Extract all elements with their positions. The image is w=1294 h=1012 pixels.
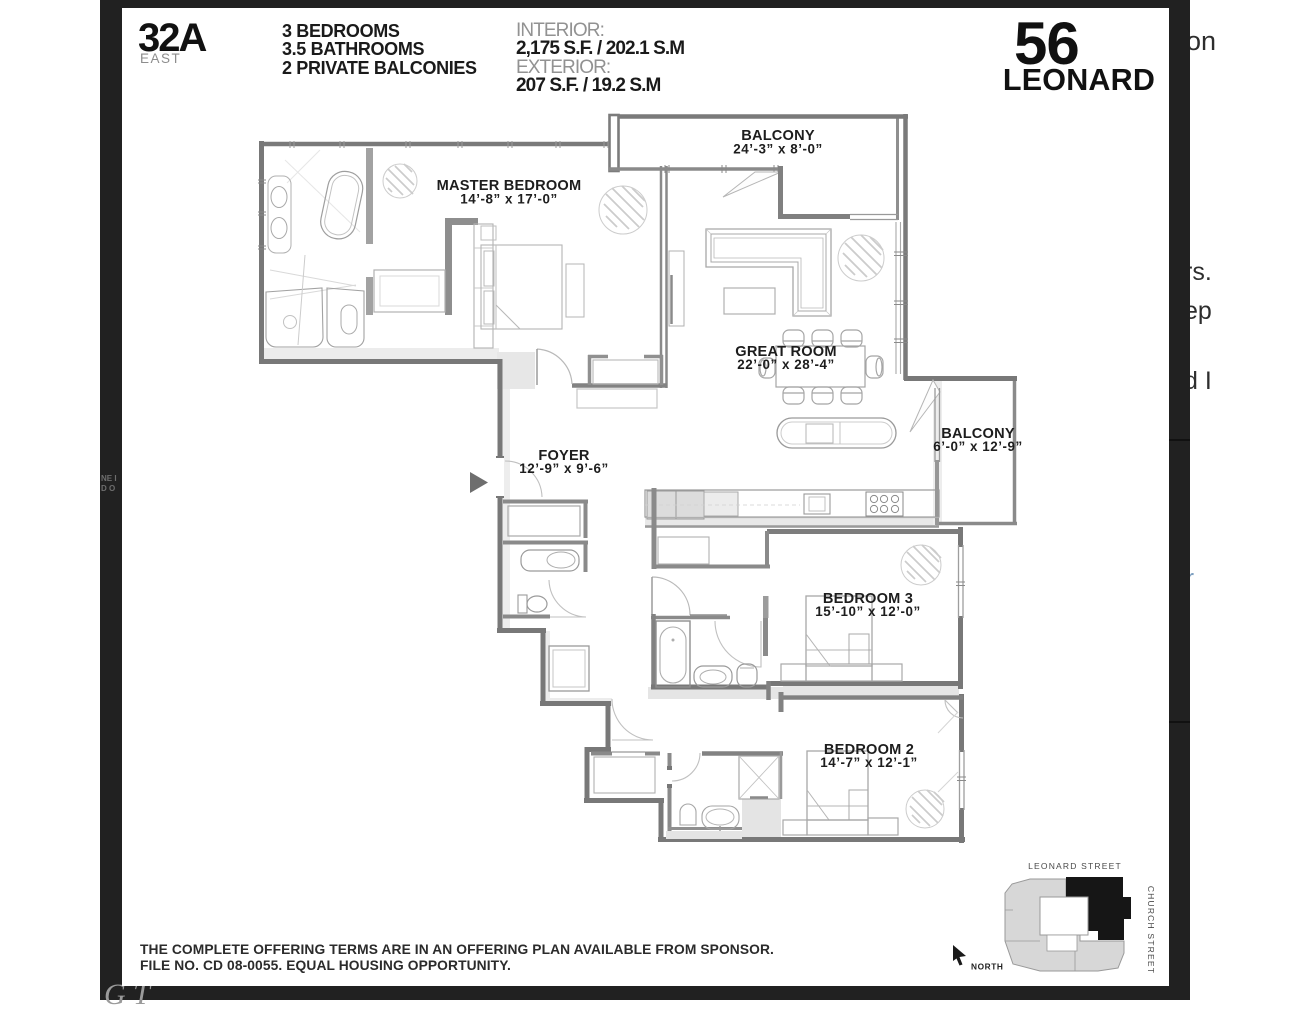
svg-text:24’-3” x 8’-0”: 24’-3” x 8’-0”	[733, 142, 823, 157]
svg-text:LEONARD STREET: LEONARD STREET	[1028, 861, 1122, 871]
svg-text:15’-10” x 12’-0”: 15’-10” x 12’-0”	[815, 604, 921, 619]
svg-text:CHURCH STREET: CHURCH STREET	[1146, 886, 1156, 974]
svg-text:12’-9” x 9’-6”: 12’-9” x 9’-6”	[519, 461, 609, 476]
svg-text:14’-8” x 17’-0”: 14’-8” x 17’-0”	[460, 192, 558, 207]
svg-text:6’-0” x 12’-9”: 6’-0” x 12’-9”	[933, 439, 1023, 454]
svg-text:14’-7” x 12’-1”: 14’-7” x 12’-1”	[820, 755, 918, 770]
svg-text:NORTH: NORTH	[971, 962, 1004, 972]
svg-text:22’-0” x 28’-4”: 22’-0” x 28’-4”	[737, 357, 835, 372]
